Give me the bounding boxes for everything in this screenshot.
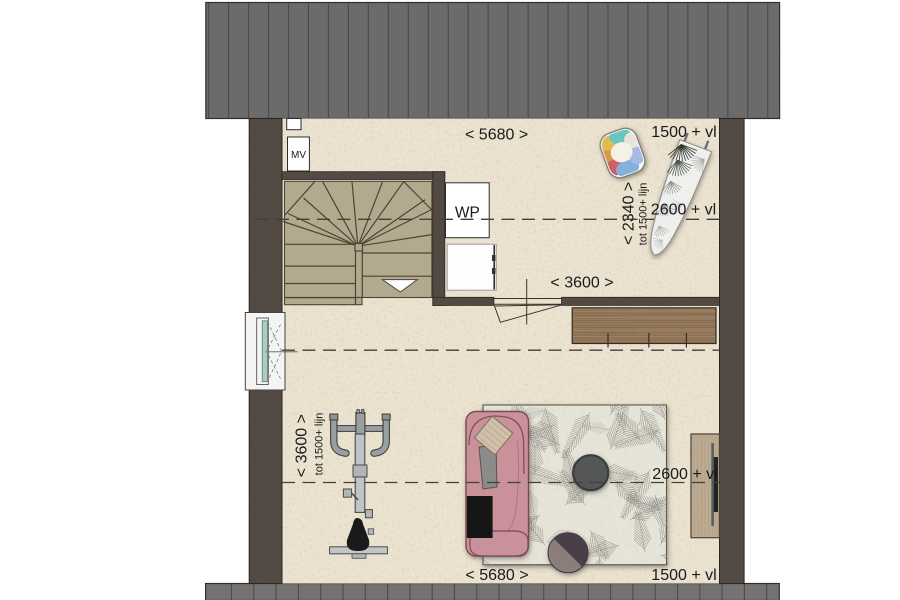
svg-text:< 3600 >: < 3600 > bbox=[550, 275, 613, 292]
svg-text:1500 + vl: 1500 + vl bbox=[651, 567, 716, 584]
svg-text:tot 1500+ lijn: tot 1500+ lijn bbox=[638, 183, 650, 246]
svg-text:MV: MV bbox=[291, 150, 306, 161]
svg-text:2600 + vl: 2600 + vl bbox=[652, 466, 717, 483]
svg-text:< 5680 >: < 5680 > bbox=[465, 567, 528, 584]
svg-text:< 3600 >: < 3600 > bbox=[294, 414, 311, 477]
svg-text:2600 + vl: 2600 + vl bbox=[651, 202, 716, 219]
svg-text:1500 + vl: 1500 + vl bbox=[651, 124, 716, 141]
svg-text:< 2340 >: < 2340 > bbox=[621, 182, 638, 245]
svg-text:tot 1500+ lijn: tot 1500+ lijn bbox=[314, 413, 326, 476]
svg-text:< 5680 >: < 5680 > bbox=[465, 127, 528, 144]
